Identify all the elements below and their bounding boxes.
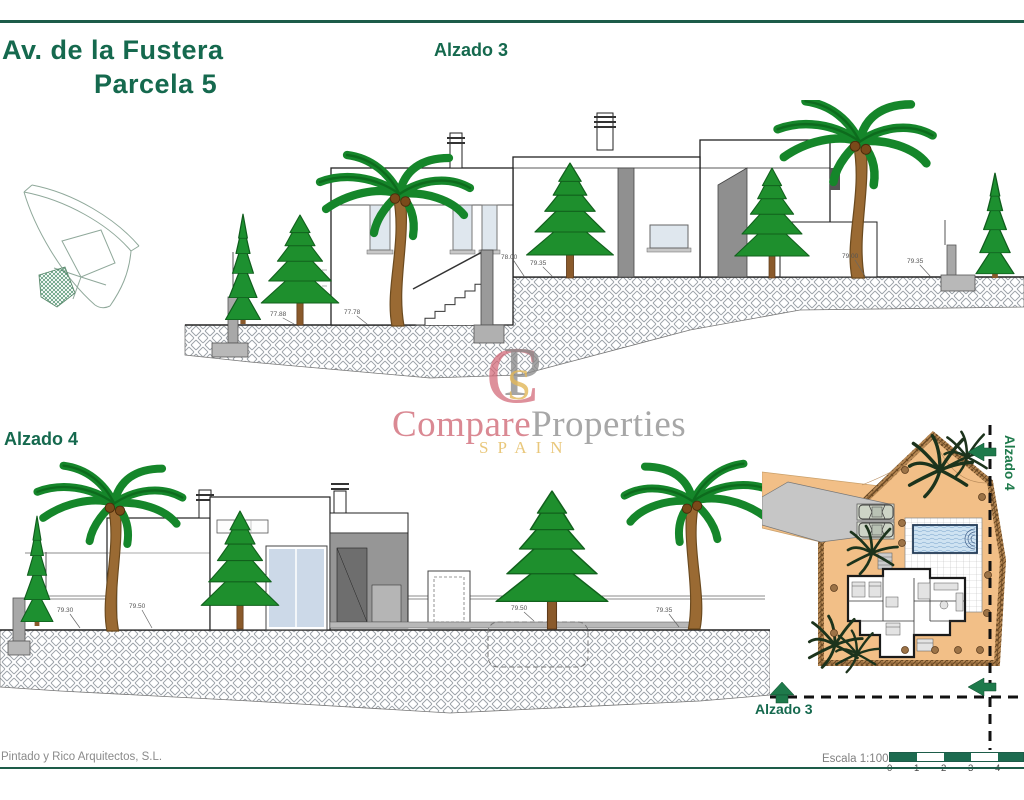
- svg-text:79.50: 79.50: [129, 603, 146, 610]
- svg-text:79.35: 79.35: [656, 607, 673, 614]
- pool: [913, 525, 977, 553]
- sheet: { "header": { "title_line1": "Av. de la …: [0, 0, 1024, 800]
- gray-wall-wedge: [718, 168, 747, 277]
- siteplan-alzado4-label: Alzado 4: [1002, 435, 1017, 491]
- roof-fascia: [330, 513, 408, 533]
- project-title-line1: Av. de la Fustera: [2, 33, 264, 67]
- chimney: [334, 491, 346, 513]
- siteplan-alzado3-label: Alzado 3: [755, 701, 813, 717]
- elevation4-drawing: 79.30 79.50 79.50 79.35: [0, 445, 770, 720]
- section-arrow-up: [770, 682, 794, 695]
- terrace-edge: [330, 622, 690, 628]
- top-border-line: [0, 20, 1024, 23]
- bottom-border-line: [0, 767, 1024, 769]
- chimney: [597, 113, 613, 150]
- project-title: Av. de la Fustera Parcela 5: [2, 33, 264, 101]
- scale-bar-segment: [998, 753, 1023, 761]
- svg-text:79.35: 79.35: [530, 260, 547, 267]
- architect-credit: Pintado y Rico Arquitectos, S.L.: [1, 751, 162, 763]
- scale-label: Escala 1:100: [822, 753, 889, 765]
- svg-text:77.88: 77.88: [270, 311, 287, 318]
- location-key-map: [2, 178, 167, 338]
- svg-text:79.35: 79.35: [907, 258, 924, 265]
- svg-text:77.78: 77.78: [344, 309, 361, 316]
- project-title-line2: Parcela 5: [94, 67, 264, 101]
- svg-text:79.30: 79.30: [57, 607, 74, 614]
- ground-hatch: [0, 630, 770, 713]
- svg-text:79.50: 79.50: [511, 605, 528, 612]
- section-arrow-left-bottom: [968, 678, 996, 696]
- elevation3-drawing: 77.88 77.78 78.00 79.35 79.00 79.35: [175, 100, 1024, 440]
- window: [650, 225, 688, 248]
- scale-bar-segment: [890, 753, 917, 761]
- scale-bar-segment: [917, 753, 944, 761]
- gray-pilaster: [618, 168, 634, 277]
- svg-text:79.00: 79.00: [842, 253, 859, 260]
- svg-text:78.00: 78.00: [501, 254, 518, 261]
- scale-bar-segment: [944, 753, 971, 761]
- scale-bar: 0 1 2 3 4: [889, 752, 1024, 762]
- elevation3-label: Alzado 3: [434, 40, 508, 61]
- scale-bar-segment: [971, 753, 998, 761]
